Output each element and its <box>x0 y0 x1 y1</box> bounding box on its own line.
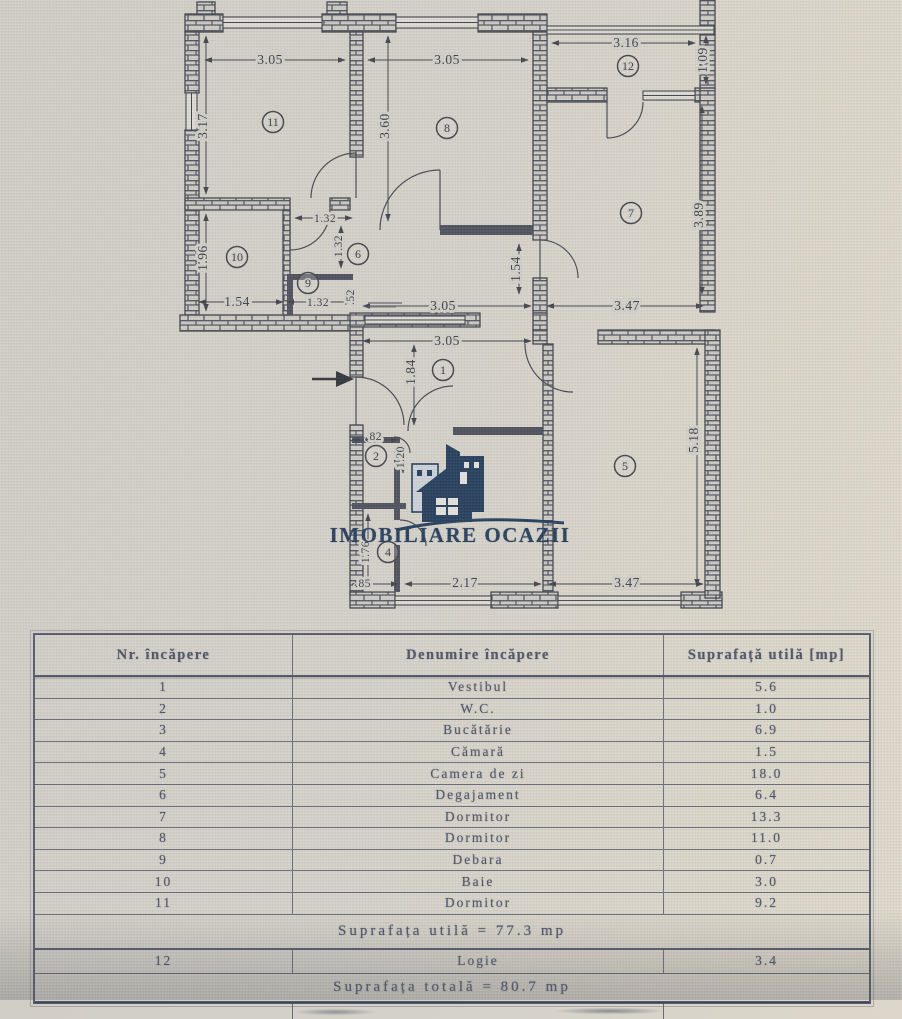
subtotal-row: Suprafața utilă = 77.3 mp <box>35 915 869 950</box>
row-number: 10 <box>35 871 293 892</box>
table-body: 1Vestibul5.62W.C.1.03Bucătărie6.94Cămară… <box>35 677 869 915</box>
room-number-8: 8 <box>437 118 458 139</box>
row-number: 3 <box>35 720 293 741</box>
table-row: 7Dormitor13.3 <box>35 807 869 829</box>
partial-cell <box>35 1003 293 1019</box>
partial-cell <box>293 1003 664 1019</box>
room-area: 5.6 <box>664 677 869 698</box>
table-row: 3Bucătărie6.9 <box>35 720 869 742</box>
room-area: 1.5 <box>664 742 869 763</box>
dim-label: 1.54 <box>508 256 523 282</box>
table-row: 9Debara0.7 <box>35 850 869 872</box>
table-row-logie: 12 Logie 3.4 <box>35 950 869 974</box>
dim-label: .52 <box>345 289 357 305</box>
dim-label: 1.09 <box>695 47 710 73</box>
room-name: Dormitor <box>293 828 664 849</box>
svg-text:9: 9 <box>305 276 311 290</box>
room-area: 3.4 <box>664 950 869 973</box>
room-number-10: 10 <box>227 247 248 268</box>
room-number-7: 7 <box>621 203 642 224</box>
dim-label: 3.05 <box>430 298 456 313</box>
dim-label: 1.54 <box>224 294 250 309</box>
total-row: Suprafața totală = 80.7 mp <box>35 974 869 1003</box>
watermark-text: IMOBILIARE OCAZII <box>318 523 582 548</box>
svg-text:7: 7 <box>628 206 634 220</box>
table-row: 6Degajament6.4 <box>35 785 869 807</box>
room-name: Degajament <box>293 785 664 806</box>
room-area: 6.9 <box>664 720 869 741</box>
dim-label: 1.32 <box>333 235 345 257</box>
dim-label: 3.05 <box>257 52 283 67</box>
svg-text:8: 8 <box>444 121 450 135</box>
header-room-name: Denumire încăpere <box>293 635 664 675</box>
row-number: 6 <box>35 785 293 806</box>
partial-cell <box>664 1003 869 1019</box>
room-area: 18.0 <box>664 763 869 784</box>
dim-label: 3.05 <box>434 333 460 348</box>
room-area: 11.0 <box>664 828 869 849</box>
table-row: 5Camera de zi18.0 <box>35 763 869 785</box>
table-row: 8Dormitor11.0 <box>35 828 869 850</box>
table-row: 10Baie3.0 <box>35 871 869 893</box>
room-number-12: 12 <box>618 56 639 77</box>
dim-label: .82 <box>366 431 382 443</box>
area-table: Nr. încăpere Denumire încăpere Suprafață… <box>33 633 871 1004</box>
dim-label: 1.32 <box>314 213 336 225</box>
svg-text:6: 6 <box>355 247 361 261</box>
dim-label: 3.47 <box>614 575 640 590</box>
room-name: Debara <box>293 850 664 871</box>
room-number-1: 1 <box>433 360 454 381</box>
room-name: Bucătărie <box>293 720 664 741</box>
svg-text:2: 2 <box>373 449 379 463</box>
room-name: Camera de zi <box>293 763 664 784</box>
dim-label: 1.84 <box>403 359 418 385</box>
row-number: 5 <box>35 763 293 784</box>
dim-label: 5.18 <box>686 427 701 453</box>
room-name: Dormitor <box>293 893 664 914</box>
room-area: 9.2 <box>664 893 869 914</box>
dim-label: 2.17 <box>452 575 478 590</box>
partial-cutoff-row <box>35 1003 869 1019</box>
header-room-area: Suprafață utilă [mp] <box>664 635 869 675</box>
svg-text:1: 1 <box>440 363 446 377</box>
room-number-6: 6 <box>348 244 369 265</box>
house-buildings-icon <box>402 444 498 524</box>
room-number-9: 9 <box>298 273 319 294</box>
dim-label: 3.89 <box>691 202 706 228</box>
room-name: Cămară <box>293 742 664 763</box>
room-area: 1.0 <box>664 699 869 720</box>
row-number: 1 <box>35 677 293 698</box>
entry-arrow <box>312 371 354 387</box>
room-area: 0.7 <box>664 850 869 871</box>
header-room-number: Nr. încăpere <box>35 635 293 675</box>
dim-label: 1.32 <box>307 297 329 309</box>
dim-label: 3.60 <box>377 113 392 139</box>
table-row: 4Cămară1.5 <box>35 742 869 764</box>
scanned-listing-photo: 3.053.053.161.093.173.603.891.961.321.32… <box>0 0 902 1000</box>
room-area: 13.3 <box>664 807 869 828</box>
room-name: Dormitor <box>293 807 664 828</box>
dim-label: 3.17 <box>195 113 210 139</box>
table-header: Nr. încăpere Denumire încăpere Suprafață… <box>35 635 869 677</box>
dim-label: 3.47 <box>614 298 640 313</box>
room-name: W.C. <box>293 699 664 720</box>
annotation-smudge <box>368 302 402 308</box>
table-row: 2W.C.1.0 <box>35 699 869 721</box>
row-number: 7 <box>35 807 293 828</box>
room-number-11: 11 <box>263 112 284 133</box>
room-name: Vestibul <box>293 677 664 698</box>
room-area: 3.0 <box>664 871 869 892</box>
room-number-5: 5 <box>615 456 636 477</box>
svg-text:12: 12 <box>622 59 634 73</box>
row-number: 9 <box>35 850 293 871</box>
room-number-2: 2 <box>366 446 387 467</box>
row-number: 4 <box>35 742 293 763</box>
dim-label: .85 <box>355 578 371 590</box>
table-row: 11Dormitor9.2 <box>35 893 869 915</box>
svg-text:11: 11 <box>267 115 279 129</box>
row-number: 12 <box>35 950 293 973</box>
row-number: 2 <box>35 699 293 720</box>
row-number: 11 <box>35 893 293 914</box>
row-number: 8 <box>35 828 293 849</box>
svg-text:5: 5 <box>622 459 628 473</box>
dim-label: 3.16 <box>613 35 639 50</box>
svg-text:10: 10 <box>231 250 243 264</box>
room-name: Logie <box>293 950 664 973</box>
table-row: 1Vestibul5.6 <box>35 677 869 699</box>
dim-label: 3.05 <box>434 52 460 67</box>
dim-label: 1.96 <box>195 245 210 271</box>
room-name: Baie <box>293 871 664 892</box>
room-area: 6.4 <box>664 785 869 806</box>
